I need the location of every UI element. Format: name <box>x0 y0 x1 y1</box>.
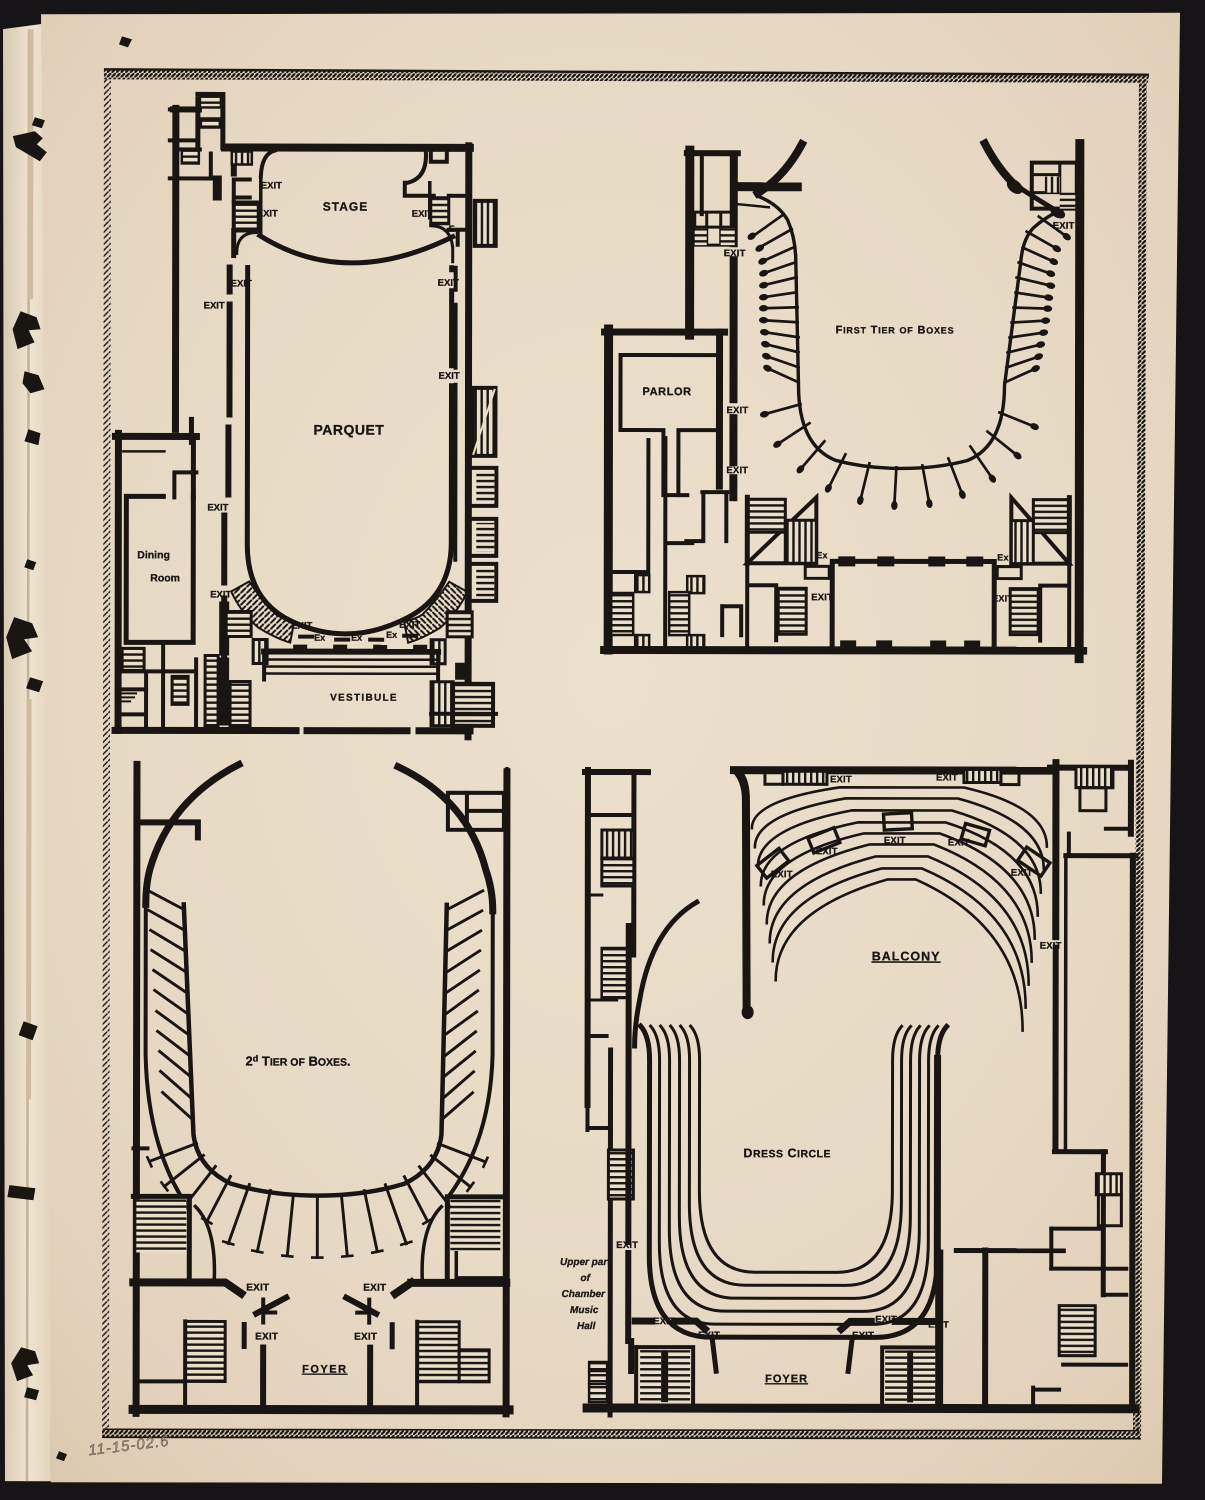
svg-text:FIRST TIER OF BOXES: FIRST TIER OF BOXES <box>836 324 955 336</box>
svg-text:EXIT: EXIT <box>724 248 746 259</box>
svg-text:Upper part: Upper part <box>560 1257 611 1268</box>
svg-text:BALCONY: BALCONY <box>872 949 941 963</box>
svg-text:EXIT: EXIT <box>653 1316 675 1327</box>
svg-text:EXIT: EXIT <box>438 278 459 289</box>
svg-text:EXIT: EXIT <box>1053 221 1075 232</box>
svg-text:VESTIBULE: VESTIBULE <box>330 693 398 704</box>
svg-text:EXIT: EXIT <box>257 209 278 220</box>
svg-text:EXIT: EXIT <box>412 209 433 220</box>
svg-text:E: E <box>449 224 455 234</box>
svg-text:Hall: Hall <box>577 1321 596 1332</box>
svg-text:STAGE: STAGE <box>323 200 368 214</box>
svg-text:PARQUET: PARQUET <box>313 422 384 438</box>
svg-text:EXIT: EXIT <box>291 621 312 632</box>
svg-text:EXIT: EXIT <box>698 1330 720 1341</box>
svg-text:EXIT: EXIT <box>1011 868 1033 879</box>
svg-text:PARLOR: PARLOR <box>642 386 691 398</box>
svg-text:Ex: Ex <box>386 630 397 640</box>
svg-text:EXIT: EXIT <box>204 300 225 311</box>
svg-text:Music: Music <box>570 1305 599 1316</box>
svg-text:Ex: Ex <box>816 550 827 560</box>
svg-text:EXIT: EXIT <box>399 620 420 631</box>
svg-text:EXIT: EXIT <box>771 869 793 880</box>
svg-text:EXIT: EXIT <box>255 1332 278 1343</box>
svg-text:EXIT: EXIT <box>207 502 228 513</box>
svg-text:EXIT: EXIT <box>616 1240 638 1251</box>
svg-text:EXIT: EXIT <box>852 1330 874 1341</box>
svg-text:EXIT: EXIT <box>1040 941 1062 952</box>
svg-text:EXIT: EXIT <box>816 846 838 857</box>
svg-text:DRESS CIRCLE: DRESS CIRCLE <box>743 1146 831 1160</box>
svg-text:EXIT: EXIT <box>875 1314 897 1325</box>
svg-text:Room: Room <box>150 572 180 584</box>
svg-text:EXIT: EXIT <box>726 405 748 416</box>
svg-text:EXIT: EXIT <box>246 1283 269 1294</box>
svg-text:EXIT: EXIT <box>210 589 231 600</box>
svg-text:2d TIER OF BOXES.: 2d TIER OF BOXES. <box>246 1054 351 1069</box>
svg-text:EXIT: EXIT <box>948 837 970 848</box>
svg-text:EXIT: EXIT <box>992 594 1013 604</box>
svg-text:EXIT: EXIT <box>928 1319 949 1329</box>
svg-text:EXIT: EXIT <box>261 181 282 192</box>
svg-text:Dining: Dining <box>137 549 170 561</box>
svg-text:EXIT: EXIT <box>231 278 252 289</box>
svg-text:Ex: Ex <box>997 553 1008 563</box>
svg-text:Ex: Ex <box>351 633 362 643</box>
svg-text:EXIT: EXIT <box>811 592 833 603</box>
svg-text:Ex: Ex <box>314 633 325 643</box>
svg-text:EXIT: EXIT <box>726 465 748 476</box>
svg-text:FOYER: FOYER <box>765 1373 808 1385</box>
svg-text:EXIT: EXIT <box>354 1332 377 1343</box>
svg-text:EXIT: EXIT <box>439 371 460 382</box>
svg-text:EXIT: EXIT <box>884 835 906 846</box>
svg-text:Chamber: Chamber <box>562 1289 606 1300</box>
svg-text:EXIT: EXIT <box>363 1283 386 1294</box>
svg-text:of: of <box>581 1273 592 1284</box>
svg-text:EXIT: EXIT <box>936 772 958 783</box>
svg-text:FOYER: FOYER <box>302 1364 347 1376</box>
svg-text:EXIT: EXIT <box>830 774 852 785</box>
